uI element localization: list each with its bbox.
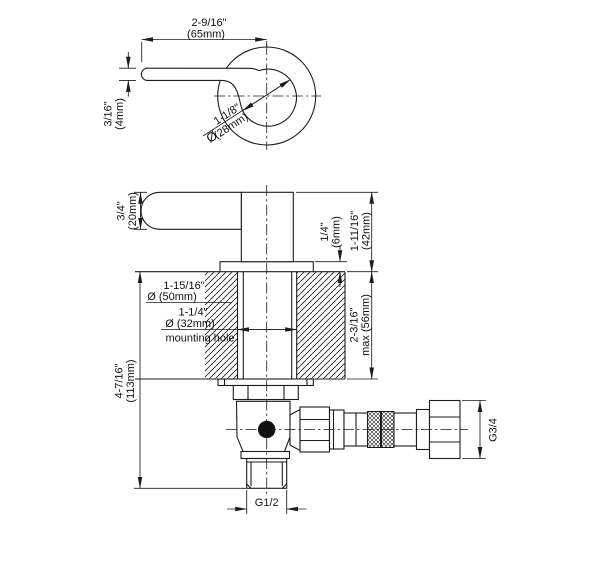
label-mounting-hole-in: 1-1/4" bbox=[179, 307, 208, 319]
dim-lever-height-mm: (20mm) bbox=[127, 192, 139, 230]
label-escutcheon-dia-mm: Ø (50mm) bbox=[147, 291, 197, 303]
valve-shank bbox=[243, 272, 291, 379]
valve-port-dot bbox=[258, 421, 275, 438]
dim-flange-height-mm: (6mm) bbox=[331, 216, 343, 248]
dim-lever-tip: 3/16" (4mm) bbox=[103, 52, 137, 130]
deck-hatch-right bbox=[297, 272, 345, 379]
dim-flange-height-in: 1/4" bbox=[319, 222, 331, 241]
locknut bbox=[233, 386, 298, 400]
faucet-valve-drawing: 2-9/16" (65mm) 3/16" (4mm) Ø 1-1/8" (28m… bbox=[0, 0, 600, 565]
dim-deck-thickness-in: 2-3/16" bbox=[349, 307, 361, 342]
dim-outlet-thread-label: G1/2 bbox=[255, 497, 279, 509]
label-mounting-hole-mm: Ø (32mm) bbox=[165, 318, 215, 330]
dim-deck-thickness-mm: max (56mm) bbox=[360, 294, 372, 356]
dim-total-height-mm: (113mm) bbox=[125, 359, 137, 402]
dim-inlet-thread-label: G3/4 bbox=[488, 418, 500, 442]
technical-drawing: 2-9/16" (65mm) 3/16" (4mm) Ø 1-1/8" (28m… bbox=[0, 0, 600, 565]
dim-lever-tip-mm: (4mm) bbox=[114, 98, 126, 130]
dim-deck-thickness: 2-3/16" max (56mm) bbox=[347, 272, 378, 379]
dim-above-deck-in: 1-11/16" bbox=[349, 211, 361, 251]
dim-lever-tip-in: 3/16" bbox=[103, 101, 115, 126]
lever-front-view bbox=[141, 192, 241, 229]
valve-base bbox=[241, 452, 290, 459]
dim-lever-height-in: 3/4" bbox=[116, 201, 128, 220]
lever-top-view-fill bbox=[141, 68, 259, 108]
label-mounting-hole-text: mounting hole bbox=[165, 333, 234, 345]
dim-lever-length: 2-9/16" (65mm) bbox=[142, 17, 267, 62]
dim-total-height-in: 4-7/16" bbox=[114, 363, 126, 398]
dim-above-deck-mm: (42mm) bbox=[361, 212, 373, 250]
dim-lever-length-mm: (65mm) bbox=[187, 29, 225, 41]
washer bbox=[218, 379, 313, 386]
top-view bbox=[141, 44, 321, 150]
cartridge-body bbox=[241, 192, 293, 261]
outlet-collar bbox=[290, 410, 300, 451]
dim-lever-length-in: 2-9/16" bbox=[191, 17, 226, 29]
